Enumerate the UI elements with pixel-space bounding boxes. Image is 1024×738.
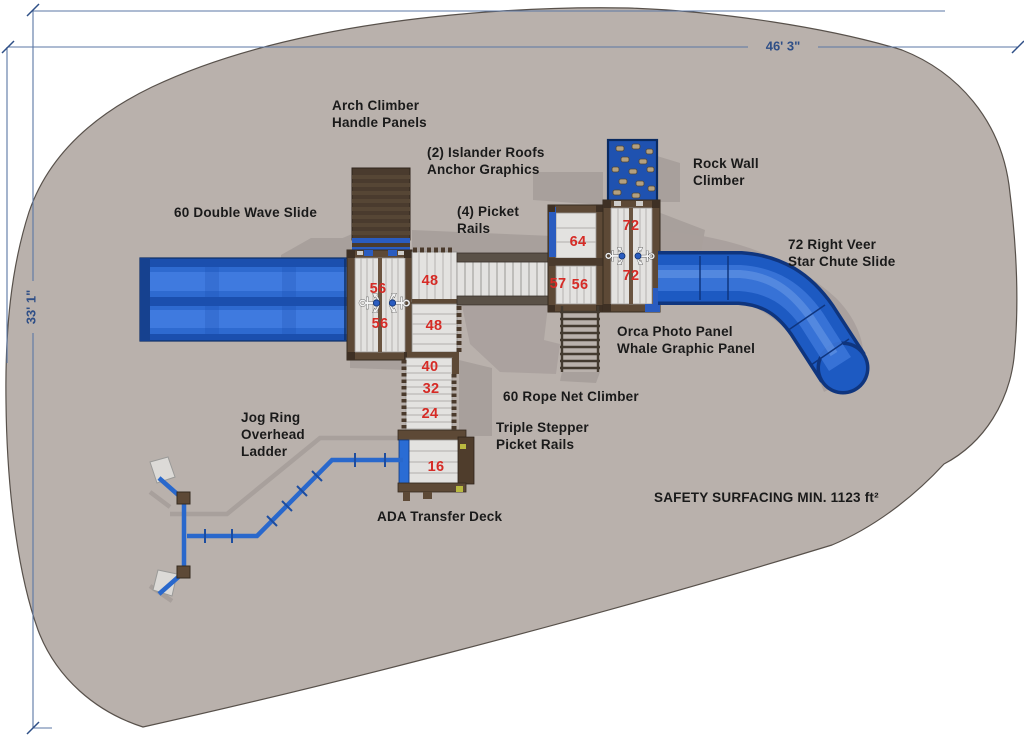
label-orca-panel: Orca Photo Panel Whale Graphic Panel bbox=[617, 323, 755, 357]
mid-deck bbox=[548, 205, 603, 312]
deck-height-48: 48 bbox=[426, 318, 443, 334]
deck-height-24: 24 bbox=[422, 406, 439, 422]
label-picket-rails: (4) Picket Rails bbox=[457, 203, 519, 237]
label-safety-surfacing: SAFETY SURFACING MIN. 1123 ft² bbox=[654, 489, 879, 506]
deck-height-57: 57 bbox=[550, 276, 567, 292]
double-wave-slide bbox=[140, 258, 352, 341]
picket-rail-platforms bbox=[407, 250, 459, 358]
deck-height-72: 72 bbox=[623, 268, 640, 284]
deck-height-16: 16 bbox=[428, 459, 445, 475]
bridge-walkway bbox=[457, 253, 553, 305]
label-arch-climber: Arch Climber Handle Panels bbox=[332, 97, 427, 131]
deck-height-64: 64 bbox=[570, 234, 587, 250]
width-dimension-label: 46' 3" bbox=[766, 39, 801, 54]
deck-height-56: 56 bbox=[572, 277, 589, 293]
deck-height-72: 72 bbox=[623, 218, 640, 234]
label-jog-ring: Jog Ring Overhead Ladder bbox=[241, 409, 305, 460]
roof-post bbox=[549, 207, 556, 257]
anchor-icon: ⚓ bbox=[383, 291, 414, 315]
arch-climber-rail bbox=[352, 238, 410, 243]
label-double-wave-slide: 60 Double Wave Slide bbox=[174, 204, 317, 221]
deck-height-40: 40 bbox=[422, 359, 439, 375]
label-triple-stepper: Triple Stepper Picket Rails bbox=[496, 419, 589, 453]
label-right-veer-slide: 72 Right Veer Star Chute Slide bbox=[788, 236, 895, 270]
deck-height-48: 48 bbox=[422, 273, 439, 289]
plan-graphics: ⚓ ⚓ bbox=[0, 0, 1024, 738]
deck-height-56: 56 bbox=[370, 281, 387, 297]
islander-roof bbox=[352, 168, 410, 252]
label-rope-net-climber: 60 Rope Net Climber bbox=[503, 388, 639, 405]
playground-plan-drawing: ⚓ ⚓ bbox=[0, 0, 1024, 738]
rock-wall-climber bbox=[608, 140, 657, 202]
deck-height-32: 32 bbox=[423, 381, 440, 397]
deck-height-56: 56 bbox=[372, 316, 389, 332]
label-islander-roofs: (2) Islander Roofs Anchor Graphics bbox=[427, 144, 545, 178]
label-ada-transfer-deck: ADA Transfer Deck bbox=[377, 508, 502, 525]
label-rock-wall-climber: Rock Wall Climber bbox=[693, 155, 759, 189]
height-dimension-label: 33' 1" bbox=[24, 290, 39, 325]
